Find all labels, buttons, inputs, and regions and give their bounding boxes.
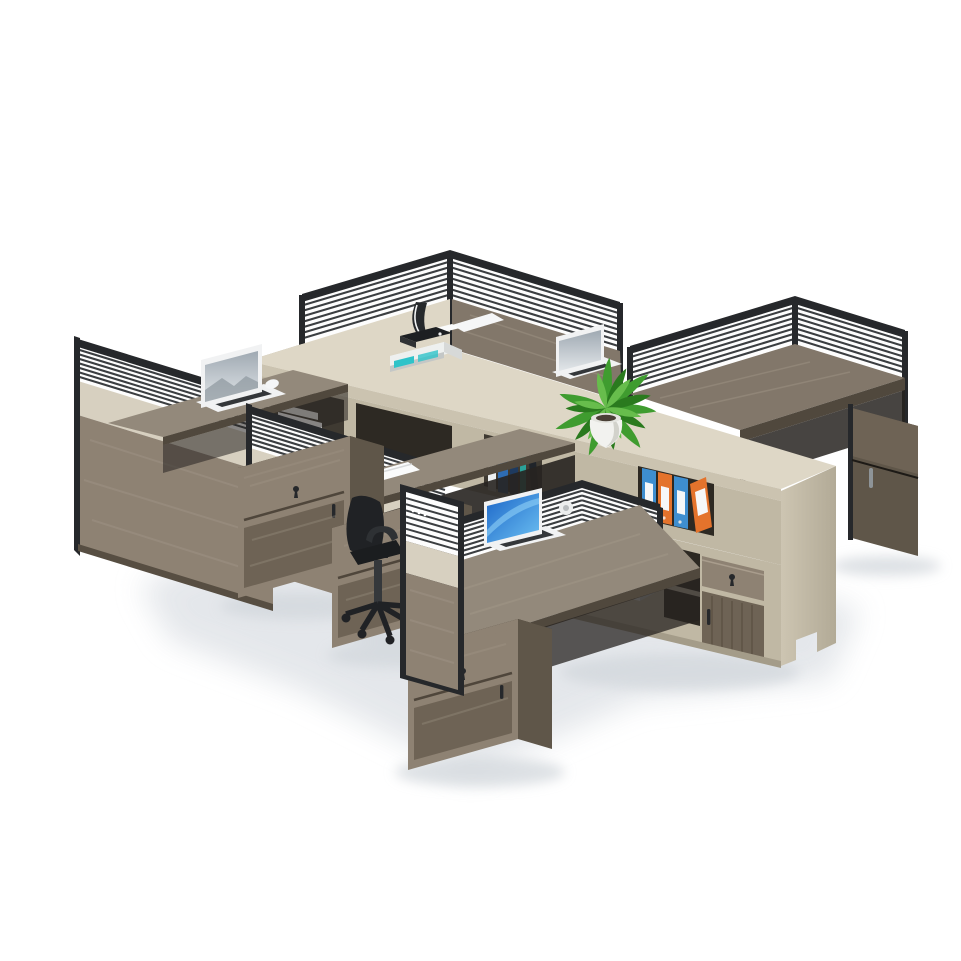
- door-handle: [707, 609, 710, 625]
- workstation-illustration: [0, 0, 961, 961]
- panel-end-cap: [400, 484, 464, 696]
- workstation-front-right: [400, 480, 700, 770]
- pedestal: [848, 404, 918, 556]
- chair-post: [374, 560, 382, 604]
- door-handle: [500, 685, 503, 699]
- drawer-handle: [869, 468, 873, 488]
- product-image: [0, 0, 961, 961]
